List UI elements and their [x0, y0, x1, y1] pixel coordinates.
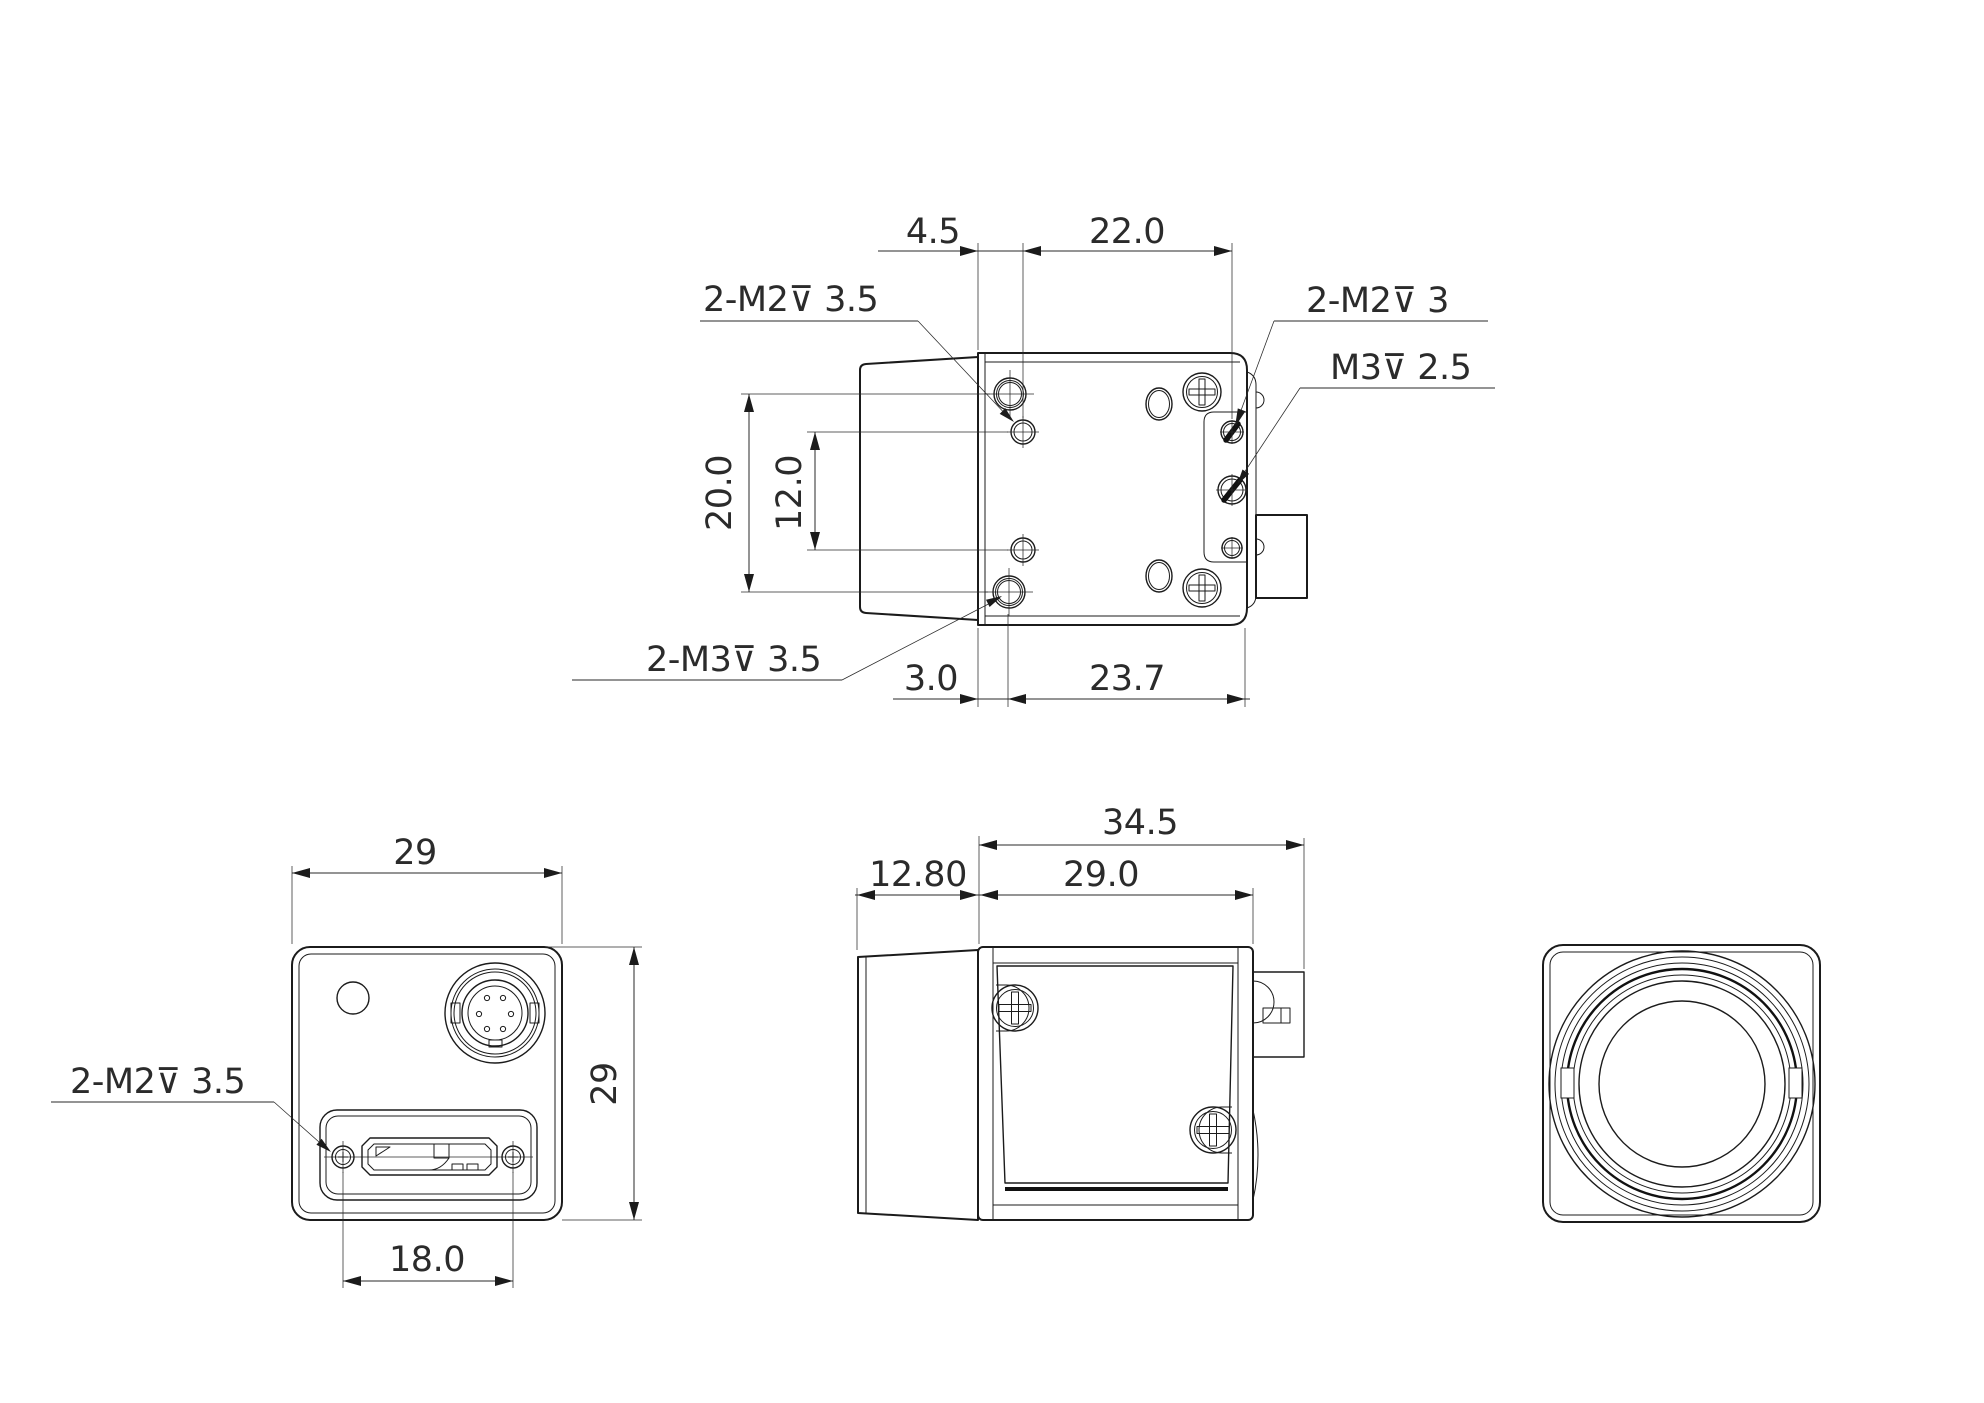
sensor-opening [1599, 1001, 1765, 1167]
front-view [1543, 945, 1820, 1222]
label-rear-m3: M3⊽ 2.5 [1330, 348, 1471, 388]
dim-total-depth-value: 34.5 [1102, 803, 1178, 843]
io-connector-top-view [1256, 515, 1307, 598]
label-front-m2: 2-M2⊽ 3.5 [703, 280, 878, 320]
body-outline [292, 947, 562, 1220]
usb-screw-right [502, 1141, 524, 1173]
engineering-drawing: 4.5 22.0 20.0 12.0 3.0 23.7 [0, 0, 1984, 1403]
back-view: 29 29 18.0 2-M2⊽ 3.5 [51, 833, 642, 1288]
io-connector-side-view [1253, 972, 1304, 1200]
mount-hole-m2-top [1007, 416, 1039, 448]
dim-rear-span: 23.7 [1089, 659, 1165, 699]
dim-bottom-row: 3.0 23.7 [893, 614, 1250, 707]
lens-barrel-outline [858, 950, 978, 1220]
dim-hole-span: 22.0 [1089, 212, 1165, 252]
side-screw-top [992, 985, 1038, 1031]
dim-body-depth-value: 29.0 [1063, 855, 1139, 895]
mount-notch-left [1561, 1068, 1574, 1098]
mount-hole-m2-bottom [1007, 534, 1039, 566]
side-view: 34.5 12.80 29.0 [855, 803, 1304, 1220]
led-hole [337, 982, 369, 1014]
lens-barrel-outline [860, 357, 978, 620]
dim-vert-inner: 12.0 [770, 455, 810, 531]
lens-mount-rings [1549, 951, 1815, 1217]
dim-height-value: 29 [585, 1062, 625, 1106]
side-boss-top [1256, 392, 1264, 408]
dim-width: 29 [292, 833, 562, 944]
rear-screw-m2-top [1220, 420, 1244, 444]
mount-notch-right [1789, 1068, 1802, 1098]
dim-rear-offset: 3.0 [904, 659, 958, 699]
dim-lens-depth-value: 12.80 [869, 855, 967, 895]
dim-top-row: 4.5 22.0 [878, 212, 1232, 419]
dim-total-depth: 34.5 [979, 803, 1304, 969]
body-outline [1543, 945, 1820, 1222]
dim-height: 29 [545, 947, 642, 1220]
oval-hole-top [1146, 388, 1172, 420]
label-rear-m2: 2-M2⊽ 3 [1306, 281, 1449, 321]
drawing-canvas: 4.5 22.0 20.0 12.0 3.0 23.7 [0, 0, 1984, 1403]
usb-micro-b-connector [362, 1138, 497, 1175]
side-screw-bottom [1190, 1107, 1236, 1153]
usb-recess [320, 1110, 537, 1200]
dim-left-column: 20.0 12.0 [700, 394, 1008, 592]
mount-hole-m3-bottom [985, 568, 1033, 616]
phillips-screw-top [1183, 373, 1221, 411]
dim-lens-body-depth: 12.80 29.0 [855, 855, 1253, 950]
rear-plate [1247, 372, 1256, 608]
dim-width-value: 29 [393, 833, 437, 873]
label-usb-m2: 2-M2⊽ 3.5 [70, 1062, 245, 1102]
callout-front-m2: 2-M2⊽ 3.5 [700, 280, 1014, 422]
mount-hole-m3-top [986, 370, 1034, 418]
body-chamfer [1550, 952, 1813, 1215]
dim-usb-screw-span: 18.0 [343, 1172, 513, 1288]
hirose-connector [445, 963, 545, 1063]
side-cover-panel [997, 966, 1233, 1183]
side-boss-bottom [1256, 539, 1264, 555]
dim-vert-outer: 20.0 [700, 455, 740, 531]
dim-front-offset: 4.5 [906, 212, 960, 252]
dim-usb-span-value: 18.0 [389, 1240, 465, 1280]
oval-hole-bottom [1146, 560, 1172, 592]
rear-screw-m2-bottom [1221, 537, 1243, 559]
usb-screw-left [332, 1141, 354, 1173]
body-outline [978, 947, 1253, 1220]
callout-usb-m2: 2-M2⊽ 3.5 [51, 1062, 331, 1152]
callout-rear-m3: M3⊽ 2.5 [1237, 348, 1495, 485]
top-view: 4.5 22.0 20.0 12.0 3.0 23.7 [572, 212, 1495, 707]
label-front-m3: 2-M3⊽ 3.5 [646, 640, 821, 680]
phillips-screw-bottom [1183, 569, 1221, 607]
